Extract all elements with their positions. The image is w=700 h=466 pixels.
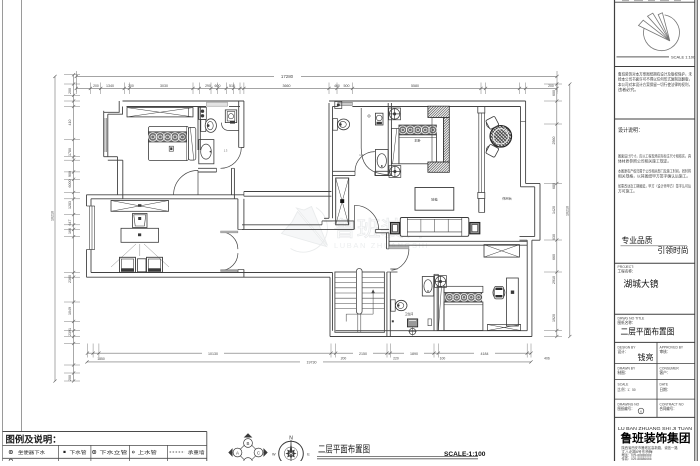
svg-text:660: 660: [552, 254, 556, 260]
svg-text:SCALE: SCALE: [618, 383, 630, 387]
svg-text:图例及说明：: 图例及说明：: [6, 434, 62, 445]
svg-text:647: 647: [68, 220, 72, 226]
svg-text:200: 200: [128, 84, 134, 88]
svg-text:主卧: 主卧: [414, 138, 421, 143]
svg-text:290: 290: [205, 84, 211, 88]
svg-text:合同编号：: 合同编号：: [660, 406, 677, 411]
svg-text:2150: 2150: [359, 352, 367, 356]
svg-text:休闲台: 休闲台: [502, 196, 512, 201]
svg-text:200: 200: [341, 356, 347, 360]
svg-text:SCALE-1:100: SCALE-1:100: [444, 451, 486, 458]
svg-text:下水管: 下水管: [70, 449, 87, 456]
svg-text:A: A: [236, 450, 239, 455]
svg-text:2560: 2560: [552, 137, 556, 145]
svg-text:SCALE 1:100: SCALE 1:100: [671, 55, 696, 60]
svg-text:1.3: 1.3: [224, 149, 228, 153]
svg-text:100: 100: [440, 356, 446, 360]
svg-text:N: N: [289, 436, 293, 442]
svg-text:1920: 1920: [552, 314, 556, 322]
svg-text:CONTRACT NO: CONTRACT NO: [660, 403, 685, 407]
svg-text:1049: 1049: [68, 307, 72, 315]
svg-text:1890: 1890: [410, 352, 418, 356]
svg-text:本图原有产权归属于公司相关部门及施工时间，同时将: 本图原有产权归属于公司相关部门及施工时间，同时将: [618, 169, 691, 174]
svg-text:相关规格，以其图纸甲方签字确认后施工。: 相关规格，以其图纸甲方签字确认后施工。: [618, 174, 690, 179]
svg-text:6000: 6000: [68, 180, 72, 188]
svg-text:二层平面布置图: 二层平面布置图: [621, 326, 675, 337]
svg-text:1420: 1420: [552, 206, 556, 214]
svg-text:专业品质: 专业品质: [622, 235, 653, 245]
svg-text:1780: 1780: [68, 148, 72, 156]
svg-text:CONSUMER: CONSUMER: [660, 367, 680, 371]
svg-text:鲁班装饰对本方案图纸拥有设计及版权保护，未: 鲁班装饰对本方案图纸拥有设计及版权保护，未: [618, 71, 692, 77]
svg-text:2910: 2910: [552, 276, 556, 284]
svg-text:600: 600: [552, 90, 556, 96]
svg-text:图纸名称：: 图纸名称：: [618, 319, 636, 325]
svg-text:客户：: 客户：: [660, 370, 671, 375]
svg-text:600: 600: [215, 84, 221, 88]
svg-text:1340: 1340: [106, 84, 114, 88]
svg-text:工程名称：: 工程名称：: [618, 268, 636, 274]
svg-text:2391: 2391: [68, 328, 72, 336]
svg-text:10130: 10130: [208, 352, 218, 356]
svg-text:DRAWING NO: DRAWING NO: [618, 403, 640, 407]
svg-text:680: 680: [552, 183, 556, 189]
svg-text:W: W: [272, 453, 276, 457]
svg-text:DESIGN BY: DESIGN BY: [618, 346, 637, 350]
svg-text:900: 900: [68, 171, 72, 177]
svg-text:166: 166: [68, 228, 72, 234]
svg-text:410: 410: [68, 120, 72, 126]
svg-text:LU BAN ZHUANG SHI JI TUAN: LU BAN ZHUANG SHI JI TUAN: [618, 426, 692, 431]
svg-text:地毯: 地毯: [431, 196, 438, 201]
svg-text:C: C: [257, 450, 260, 455]
svg-text:17280: 17280: [281, 74, 294, 79]
svg-text:B: B: [247, 441, 250, 446]
svg-text:APPROVED BY: APPROVED BY: [660, 346, 684, 350]
svg-text:坐便器下水: 坐便器下水: [18, 449, 45, 456]
svg-text:经本公司书面许可不得以任何形式复制及翻版，: 经本公司书面许可不得以任何形式复制及翻版，: [618, 76, 692, 82]
svg-text:10210: 10210: [51, 211, 55, 221]
svg-text:审核：: 审核：: [660, 349, 671, 354]
svg-text:下水立管: 下水立管: [100, 449, 129, 456]
svg-text:406: 406: [544, 356, 550, 360]
svg-text:图面设计尺寸，应以工程现场实际标注尺寸相核实，具: 图面设计尺寸，应以工程现场实际标注尺寸相核实，具: [618, 154, 691, 159]
svg-text:200: 200: [68, 88, 72, 94]
svg-text:DATE: DATE: [660, 383, 669, 387]
svg-text:本公司对本设计方案保留一切行使法律的权利，: 本公司对本设计方案保留一切行使法律的权利，: [618, 81, 692, 87]
svg-text:1283: 1283: [68, 201, 72, 209]
svg-text:630: 630: [552, 234, 556, 240]
svg-text:200: 200: [548, 84, 554, 88]
svg-text:DRAWN BY: DRAWN BY: [618, 367, 636, 371]
svg-text:违者必究。: 违者必究。: [618, 86, 638, 92]
svg-text:制图：: 制图：: [618, 370, 629, 375]
svg-text:19730: 19730: [307, 361, 317, 365]
svg-text:日期：: 日期：: [660, 387, 671, 392]
svg-text:湖城大镜: 湖城大镜: [624, 278, 659, 289]
svg-text:鲁班装饰集团: 鲁班装饰集团: [621, 431, 691, 445]
svg-text:体材质参照公司相关施工规定。: 体材质参照公司相关施工规定。: [618, 159, 671, 164]
svg-text:4184: 4184: [481, 352, 489, 356]
svg-text:200: 200: [93, 84, 99, 88]
svg-text:图纸编号：: 图纸编号：: [618, 406, 635, 411]
svg-text:500: 500: [344, 84, 350, 88]
svg-text:设计说明：: 设计说明：: [618, 126, 643, 134]
svg-text:比 例：1：50: 比 例：1：50: [618, 387, 636, 392]
svg-text:E: E: [307, 453, 310, 457]
svg-text:传真：029-88886666: 传真：029-88886666: [622, 456, 652, 461]
svg-text:5580: 5580: [411, 84, 419, 88]
svg-text:2360: 2360: [68, 275, 72, 283]
svg-text:200: 200: [68, 375, 72, 381]
svg-text:如需改动及工期顺延，甲方（设计师甲方）签字认可后: 如需改动及工期顺延，甲方（设计师甲方）签字认可后: [618, 184, 691, 189]
svg-text:卫生间: 卫生间: [405, 312, 414, 316]
svg-text:10210: 10210: [565, 206, 569, 216]
svg-text:方可施工。: 方可施工。: [618, 189, 637, 194]
svg-text:510: 510: [229, 84, 235, 88]
svg-text:3660: 3660: [283, 84, 291, 88]
svg-text:3030: 3030: [160, 84, 168, 88]
svg-text:引领时尚: 引领时尚: [658, 245, 689, 255]
svg-text:220: 220: [393, 356, 399, 360]
svg-text:钱亮: 钱亮: [638, 352, 654, 362]
svg-text:承重墙: 承重墙: [188, 449, 205, 456]
svg-text:设计：: 设计：: [618, 349, 629, 354]
svg-text:上水管: 上水管: [138, 449, 158, 456]
svg-text:460: 460: [334, 84, 340, 88]
svg-text:1850: 1850: [97, 357, 105, 361]
svg-text:二层平面布置图: 二层平面布置图: [318, 444, 370, 456]
